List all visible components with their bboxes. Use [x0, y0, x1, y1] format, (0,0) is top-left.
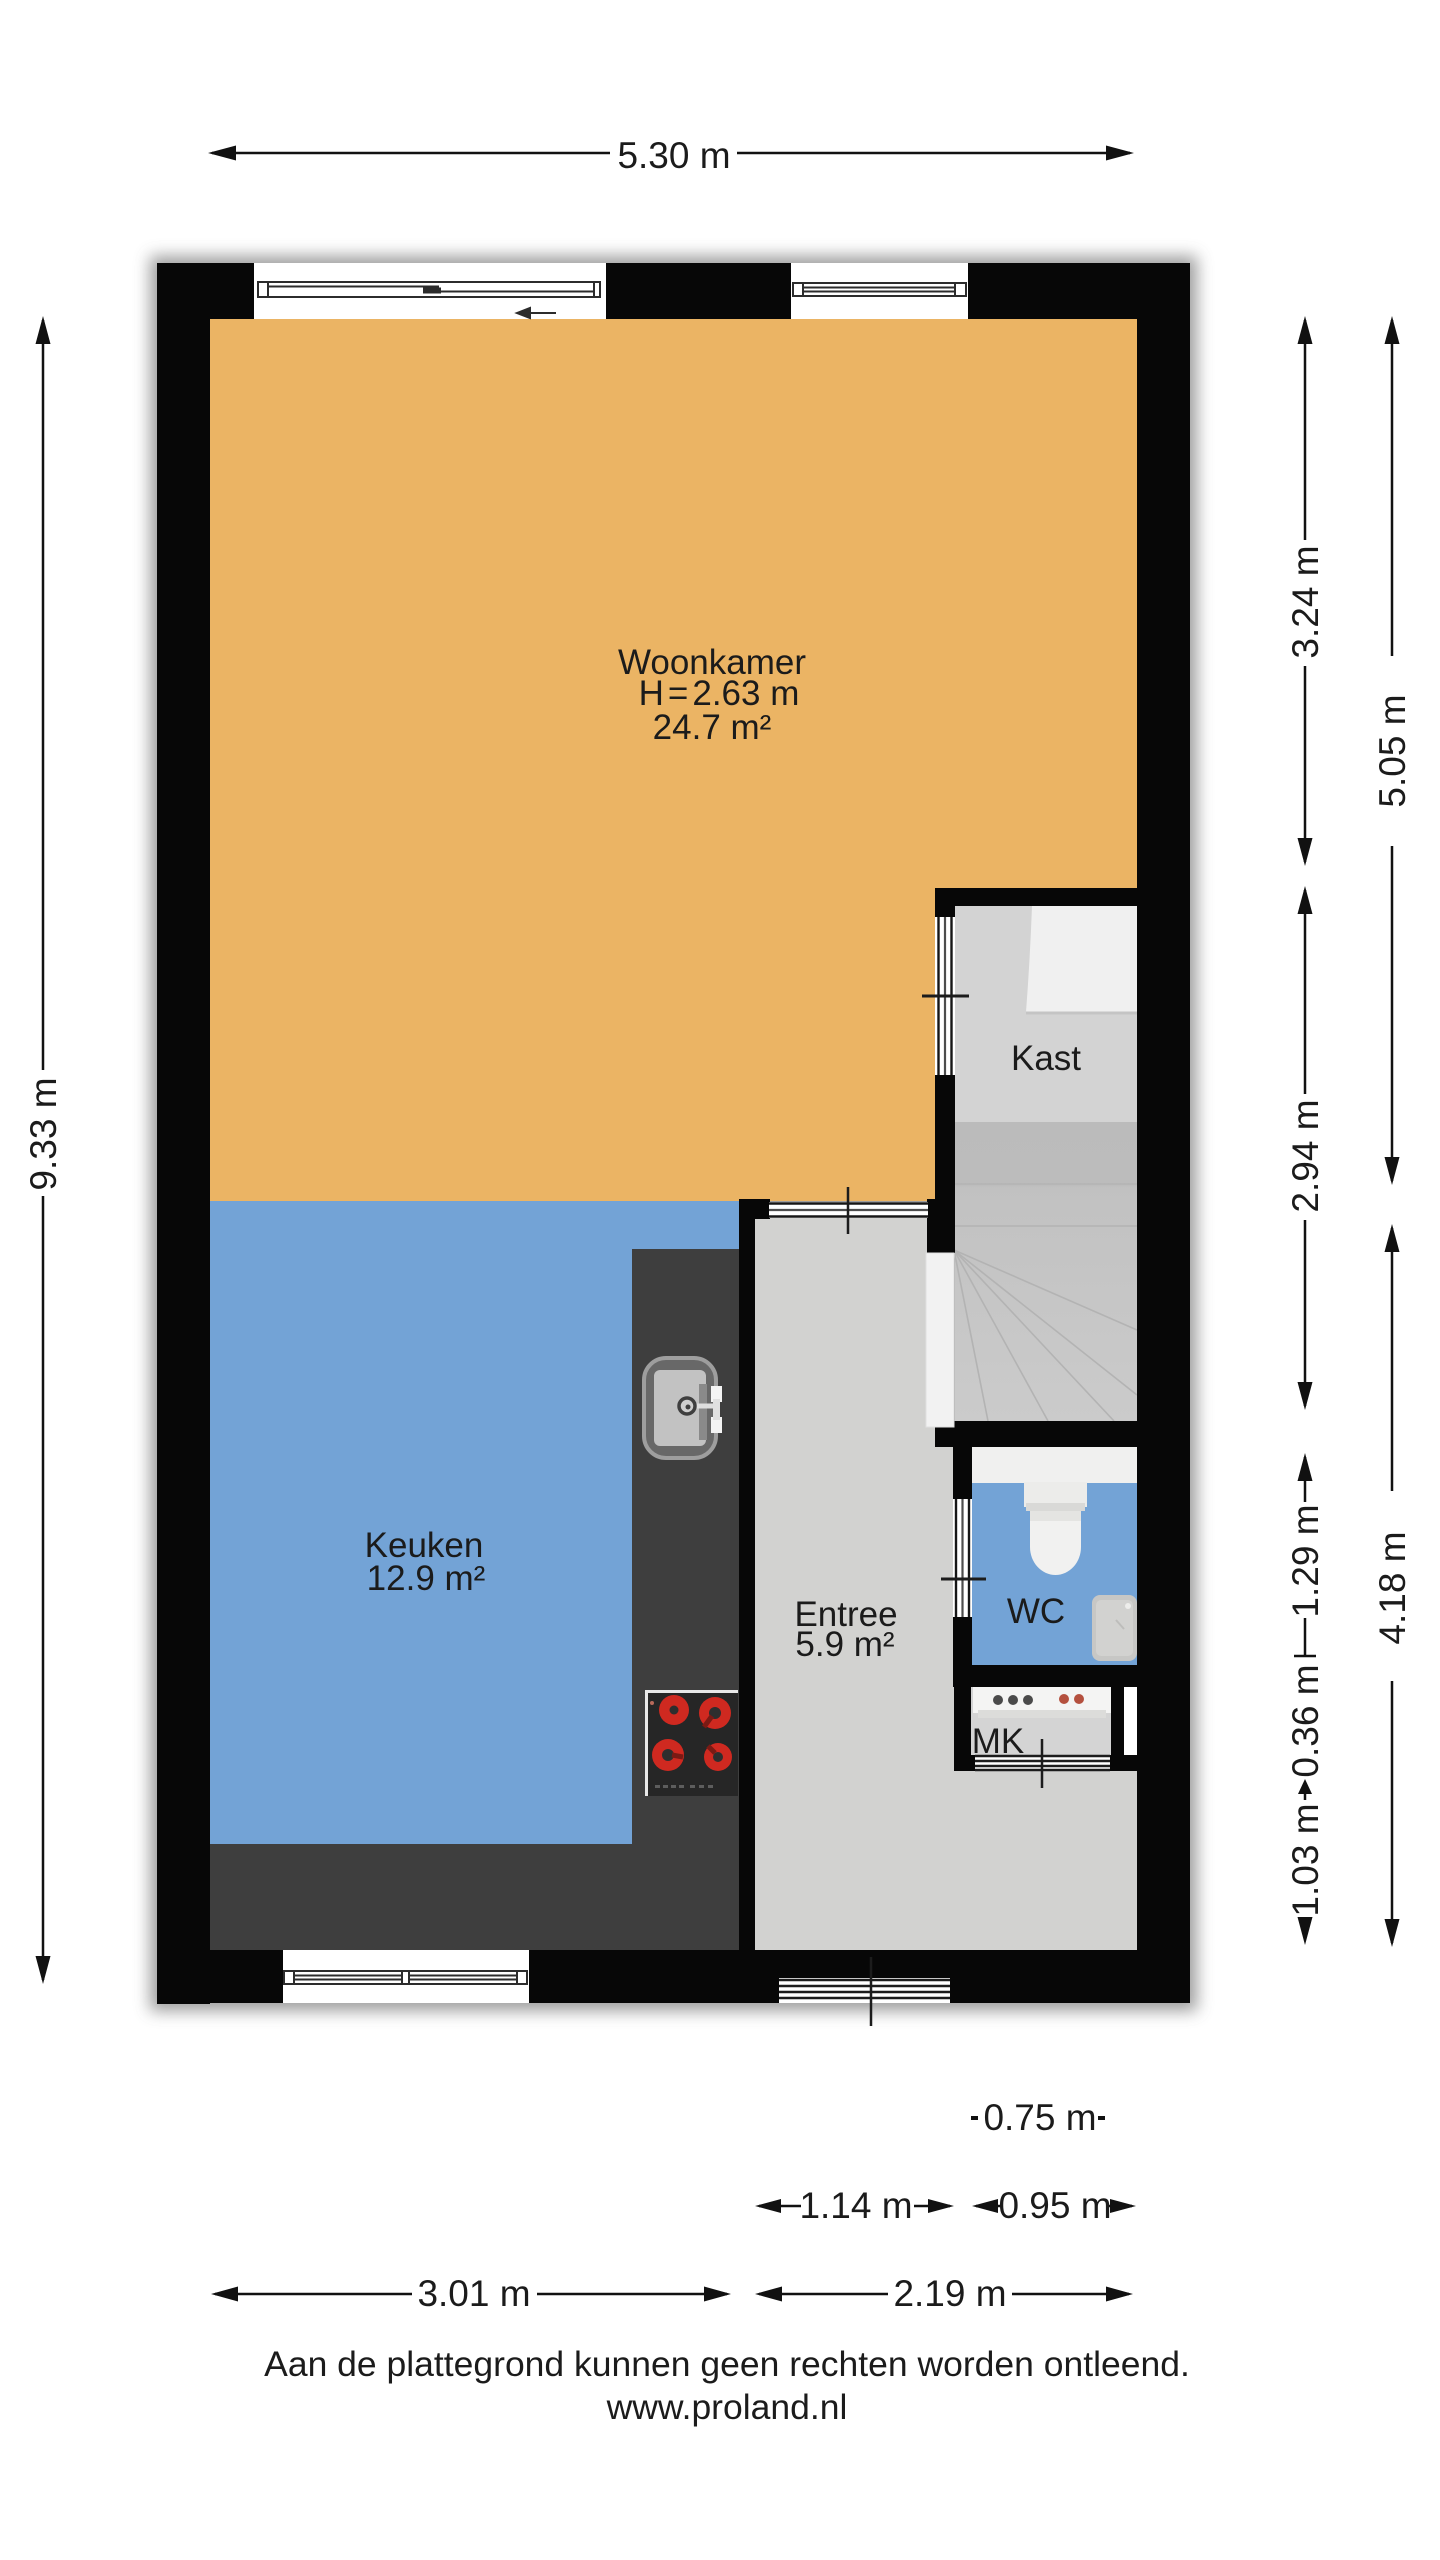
svg-text:1.29 m: 1.29 m [1285, 1504, 1326, 1617]
svg-text:MK: MK [972, 1722, 1025, 1761]
svg-text:5.9 m²: 5.9 m² [795, 1625, 894, 1664]
svg-text:Aan de plattegrond kunnen geen: Aan de plattegrond kunnen geen rechten w… [264, 2344, 1190, 2384]
svg-text:0.75 m: 0.75 m [983, 2097, 1096, 2138]
svg-text:3.01 m: 3.01 m [417, 2273, 530, 2314]
svg-text:3.24 m: 3.24 m [1285, 545, 1326, 658]
svg-text:2.19 m: 2.19 m [893, 2273, 1006, 2314]
svg-text:5.05 m: 5.05 m [1372, 694, 1413, 807]
svg-text:9.33 m: 9.33 m [23, 1077, 64, 1190]
svg-text:2.94 m: 2.94 m [1285, 1099, 1326, 1212]
svg-text:1.03 m: 1.03 m [1285, 1803, 1326, 1916]
svg-text:0.36 m: 0.36 m [1285, 1664, 1326, 1777]
svg-text:www.proland.nl: www.proland.nl [606, 2387, 848, 2427]
svg-text:1.14 m: 1.14 m [799, 2185, 912, 2226]
svg-text:5.30 m: 5.30 m [617, 135, 730, 176]
svg-text:WC: WC [1007, 1592, 1065, 1631]
svg-text:12.9 m²: 12.9 m² [367, 1559, 486, 1598]
svg-text:Kast: Kast [1011, 1039, 1081, 1078]
svg-text:4.18 m: 4.18 m [1372, 1531, 1413, 1644]
svg-text:0.95 m: 0.95 m [998, 2185, 1111, 2226]
svg-text:24.7 m²: 24.7 m² [653, 708, 772, 747]
